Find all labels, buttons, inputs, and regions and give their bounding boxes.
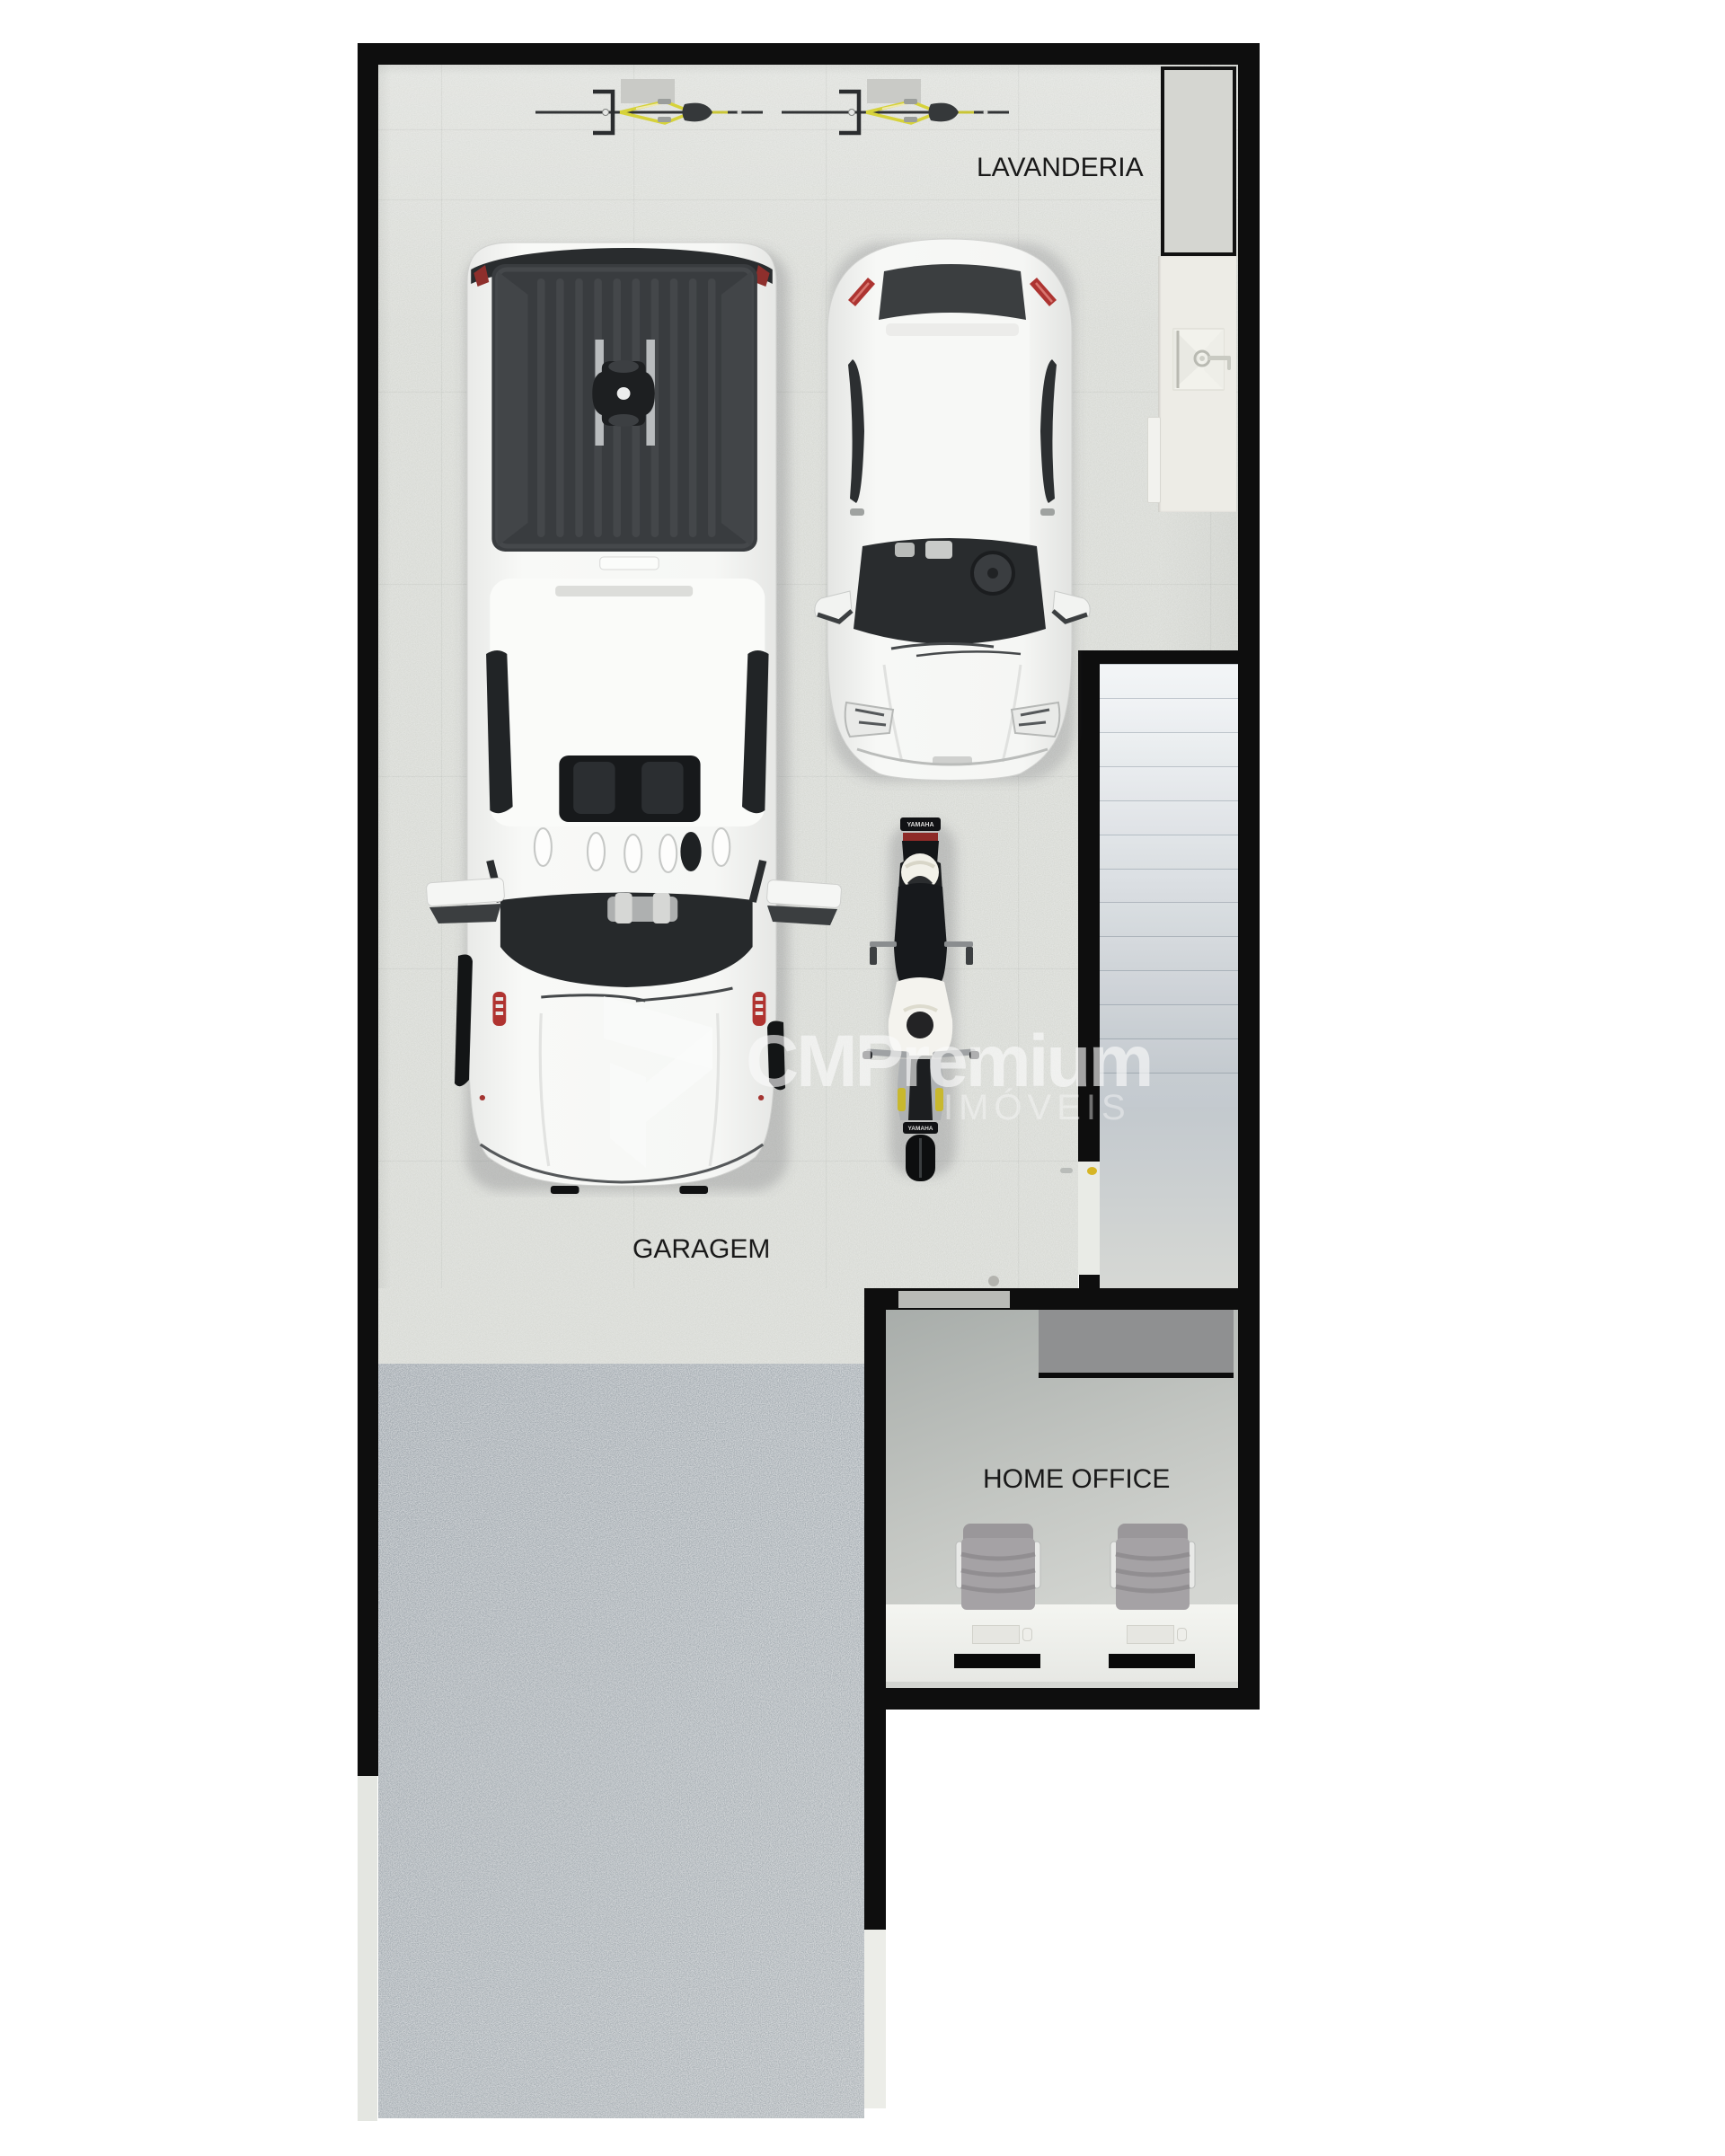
svg-text:YAMAHA: YAMAHA	[907, 822, 933, 828]
svg-text:YAMAHA: YAMAHA	[908, 1126, 933, 1132]
